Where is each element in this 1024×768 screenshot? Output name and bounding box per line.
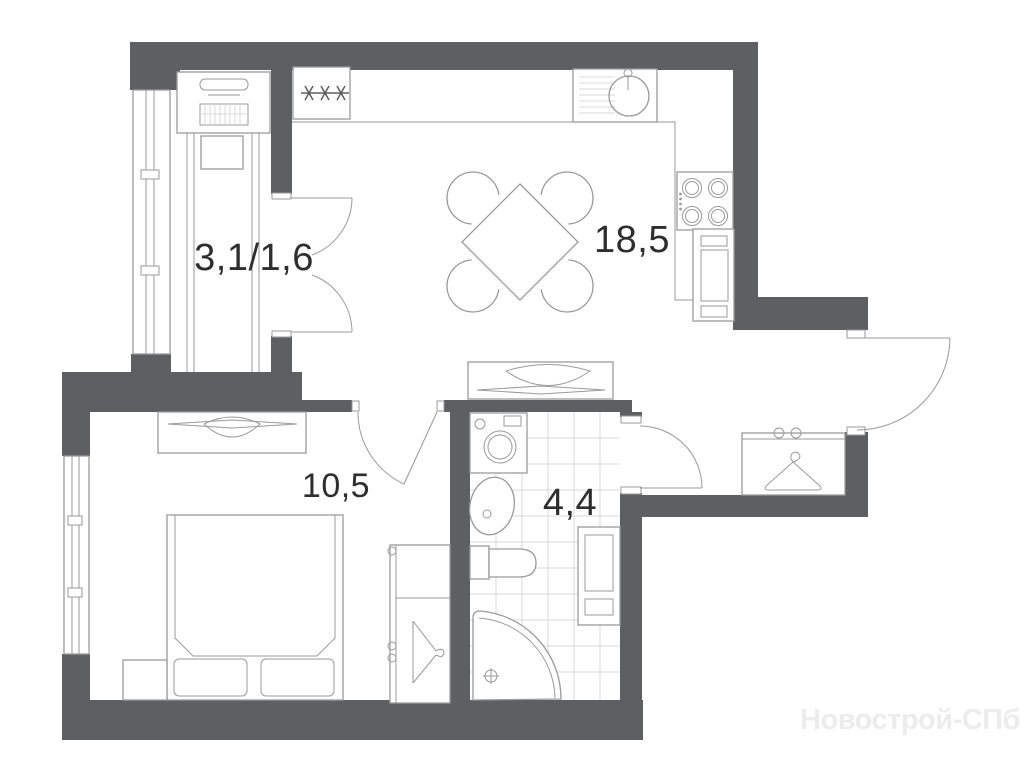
watermark: Новострой-СПб xyxy=(800,704,1020,736)
stove-icon xyxy=(677,172,733,230)
nightstand-icon xyxy=(123,660,167,700)
room-label-balcony: 3,1/1,6 xyxy=(194,237,314,279)
toilet-icon xyxy=(470,546,536,579)
bathroom-door xyxy=(621,416,702,494)
floor-plan: 3,1/1,6 18,5 10,5 4,4 Новострой-СПб xyxy=(0,0,1024,768)
room-label-bathroom: 4,4 xyxy=(543,482,597,524)
bathroom-sink-icon xyxy=(464,473,519,539)
entrance-door xyxy=(847,330,950,435)
room-label-bedroom: 10,5 xyxy=(302,467,370,505)
bedroom-window xyxy=(64,456,89,654)
balcony-unit-icon xyxy=(177,72,270,133)
fridge-icon xyxy=(693,229,734,321)
freezer-icon xyxy=(293,67,350,119)
dining-table-icon xyxy=(447,172,593,312)
hall-console-mirror-icon xyxy=(468,362,613,399)
bedroom-wardrobe-icon xyxy=(388,545,450,703)
room-label-kitchen-living: 18,5 xyxy=(594,219,670,261)
floor-plan-page: 3,1/1,6 18,5 10,5 4,4 Новострой-СПб xyxy=(0,0,1024,768)
kitchen-sink-icon xyxy=(573,69,657,122)
bed-icon xyxy=(167,515,343,700)
bedroom-dresser-icon xyxy=(158,412,306,453)
hall-wardrobe-icon xyxy=(742,428,845,495)
bathroom-cabinet-icon xyxy=(578,527,620,625)
washing-machine-icon xyxy=(470,413,527,473)
